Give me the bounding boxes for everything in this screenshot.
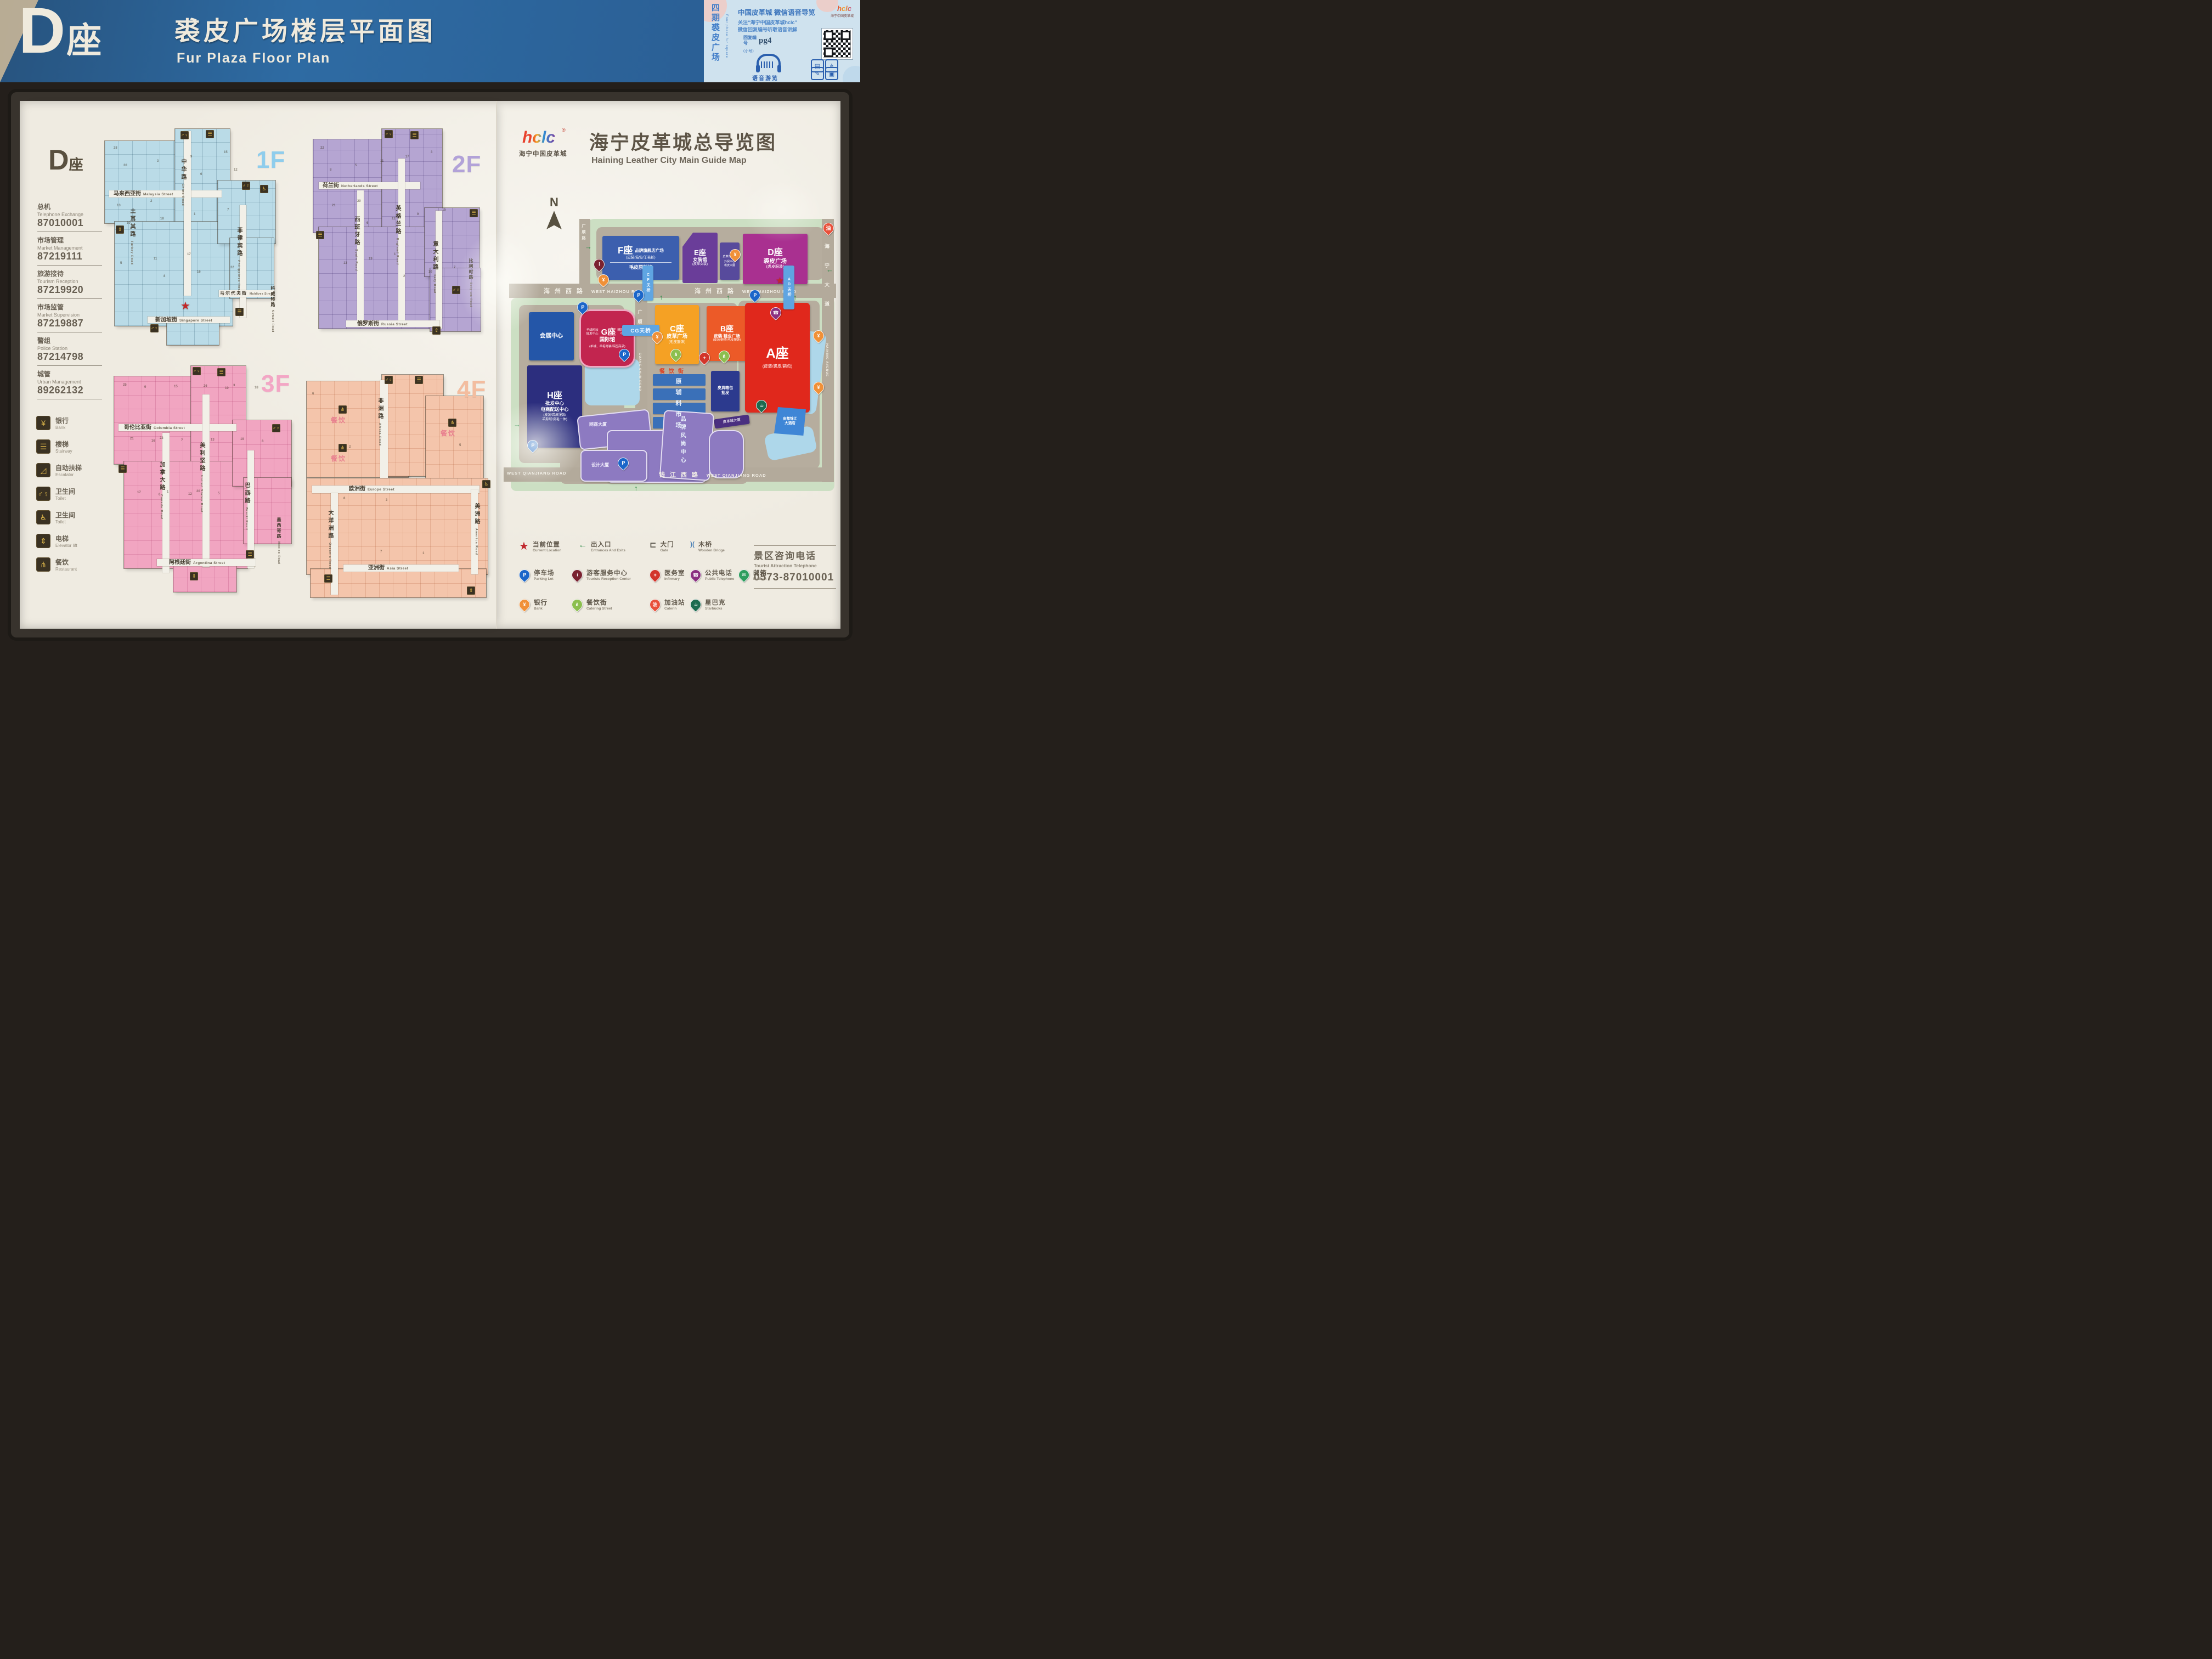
toilet-icon: ♂♀ — [272, 424, 280, 432]
unit-number: 15 — [174, 385, 178, 388]
street-name-en: Netherlands Street — [341, 184, 378, 188]
accessible_toilet-icon: ♿ — [36, 510, 50, 524]
icon-glyph: P — [753, 293, 757, 298]
icon-glyph: ⋔ — [341, 445, 345, 450]
building-title: B座 — [720, 325, 733, 333]
haining-avenue-label: 海宁大道 HAINING AVENUE — [823, 244, 831, 377]
contact-name-zh: 城管 — [37, 369, 102, 379]
icon-glyph: ♂♀ — [385, 132, 393, 137]
restaurant-label: 餐饮 — [331, 415, 346, 425]
map-legend-bank: ¥银行Bank — [519, 598, 548, 611]
street-label: 阿根廷街Argentina Street — [169, 560, 225, 566]
stairway-icon: ☰ — [235, 308, 244, 316]
street-name-en: Oceania Road — [328, 543, 331, 569]
exit-arrow-icon: ↑ — [659, 293, 663, 301]
unit-number: 2 — [150, 200, 152, 203]
exit-arrow-icon: ↑ — [634, 484, 638, 492]
unit-number: 7 — [227, 208, 229, 212]
fashion-center-label: 品牌风尚中心 — [678, 416, 686, 481]
street-name-zh: 加拿大路 — [159, 461, 165, 492]
unit-number: 13 — [117, 204, 121, 207]
unit-number: 11 — [380, 160, 383, 163]
icon-glyph: ¥ — [41, 419, 46, 427]
icon-glyph: ⋔ — [674, 352, 678, 357]
contact-name-en: Market Supervision — [37, 312, 102, 318]
icon-glyph: ◿ — [41, 466, 47, 474]
street-label: 亚洲街Asia Street — [368, 566, 408, 571]
map-legend-gate: ⊏大门Gate — [650, 540, 674, 552]
unit-number: 12 — [188, 493, 192, 496]
ad-bridge: AD天桥 — [783, 266, 794, 309]
hclc-logo-sub: 海宁中国皮革城 — [831, 13, 854, 18]
street-label: 加拿大路Canada Road — [159, 461, 164, 546]
building-line: 会展中心 — [540, 332, 563, 340]
icon-glyph: ☰ — [120, 466, 125, 471]
icon-glyph: ♿ — [40, 513, 47, 521]
accessible_toilet-icon: ♿ — [260, 185, 268, 193]
stairway-icon: ☰ — [206, 130, 214, 138]
hclc-logo-sub: 海宁中国皮革城 — [519, 149, 567, 158]
icon-glyph: ⇕ — [192, 574, 196, 579]
contact-entry: 市场监管Market Supervision87219887 — [37, 299, 102, 332]
street-label: 马尔代夫街Maldives Street — [220, 291, 274, 296]
street-path — [312, 486, 479, 493]
map-legend-zh: 出入口 — [591, 540, 625, 549]
legend-item-elevator: ⇕电梯Elevator lift — [36, 534, 82, 548]
icon-glyph: ¥ — [523, 602, 526, 607]
street-label: 非洲路Africa Road — [377, 398, 382, 466]
street-name-en: Philippines Road — [237, 260, 240, 294]
floor-block — [167, 320, 219, 345]
unit-number: 19 — [369, 257, 373, 261]
map-legend-en: Entrances And Exits — [591, 549, 625, 552]
wooden_bridge-icon: )( — [690, 541, 695, 548]
building-line: 女装馆 — [693, 257, 707, 263]
building-line: 皮革城大厦 — [723, 418, 741, 425]
building-line: 羊绒时装批发中心 — [585, 329, 600, 336]
stairway-icon: ☰ — [316, 231, 324, 239]
exit-arrow-icon: → — [585, 242, 592, 251]
floorplan-4F: 非洲路Africa Road欧洲街Europe Street大洋洲路Oceani… — [297, 371, 493, 604]
road-name-zh: 海州西路 — [695, 286, 738, 295]
reply-code: pg4 — [759, 36, 771, 46]
hotline-block: 景区咨询电话 Tourist Attraction Telephone 0573… — [754, 543, 836, 591]
restaurant-icon: ⋔ — [338, 405, 347, 414]
icon-glyph: ☎ — [692, 573, 698, 578]
building-line: (皮装/裘皮服装/ — [543, 414, 566, 418]
street-name-en: England Road — [396, 238, 399, 265]
contact-name-en: Telephone Exchange — [37, 212, 102, 217]
building-line: 皮都锦江 — [783, 417, 797, 421]
bridge-label: CG天桥 — [630, 326, 651, 334]
icon-glyph: ¥ — [656, 335, 658, 340]
floor-block — [173, 566, 236, 592]
map-legend-zh: 公共电话 — [705, 568, 734, 577]
street-name-en: Turkey Road — [130, 241, 133, 265]
road-name-zh: 海宁大道 — [824, 244, 830, 320]
street-name-zh: 阿根廷街 — [169, 560, 191, 566]
building-label: 设计大厦 — [591, 462, 609, 468]
unit-number: 10 — [225, 387, 229, 390]
building-line: 皮装·鞋业广场 — [714, 334, 740, 338]
contact-name-zh: 总机 — [37, 202, 102, 211]
building-line: (毛皮服饰) — [669, 340, 685, 345]
icon-glyph: i — [599, 262, 600, 267]
icon-glyph: ⇕ — [118, 227, 122, 232]
map-legend-current_star: ★当前位置Current Location — [519, 540, 561, 552]
map-legend-telephone: ☎公共电话Public Telephone — [690, 568, 734, 581]
contact-number: 87219887 — [37, 318, 102, 329]
map-legend-zh: 星巴克 — [705, 598, 726, 607]
unit-number: 8 — [163, 275, 165, 278]
contact-name-en: Urban Management — [37, 379, 102, 385]
contact-entry: 警组Police Station87214798 — [37, 332, 102, 366]
street-name-en: Russia Street — [381, 323, 408, 326]
street-name-zh: 新加坡街 — [155, 317, 177, 323]
street-label: 欧洲街Europe Street — [349, 487, 394, 492]
map-legend-zh: 大门 — [661, 540, 674, 549]
map-legend-mailbox: ✉邮箱Mailbox — [738, 568, 767, 581]
building-letter: D — [19, 0, 66, 67]
icon-glyph: ☎ — [772, 311, 778, 315]
icon-glyph: P — [581, 305, 584, 310]
unit-number: 19 — [240, 438, 244, 441]
map-legend-zh: 木桥 — [698, 540, 725, 549]
accessible_toilet-icon: ♿ — [482, 480, 490, 488]
legend-label-en: Toilet — [55, 520, 75, 524]
street-label: 菲律宾路Philippines Road — [236, 227, 241, 301]
street-name-en: Asia Street — [387, 567, 408, 571]
starbucks-pin-icon: ☕ — [688, 597, 703, 612]
legend-item-toilet: ♂♀卫生间Toilet — [36, 487, 82, 501]
contact-name-en: Market Management — [37, 245, 102, 251]
street-name-zh: 中华路 — [180, 159, 186, 182]
street-name-en: Spain Road — [354, 249, 358, 271]
decorative-blob — [816, 0, 838, 12]
current-location-star: ★ — [776, 275, 784, 286]
unit-number: 1 — [194, 213, 195, 216]
building-line: (皮装/箱包/羊毛衫) — [626, 256, 655, 260]
toilet-icon: ♂♀ — [150, 324, 159, 332]
icon-glyph: ⋔ — [450, 420, 455, 425]
unit-number: 17 — [405, 155, 409, 159]
unit-number: 3 — [431, 151, 432, 154]
unit-number: 15 — [442, 208, 446, 212]
floor-badge: 3F — [261, 370, 290, 398]
icon-glyph: P — [523, 573, 526, 578]
building-line: (羊绒、羊毛时装/韩国商品) — [589, 345, 625, 349]
street-name-en: Italy Road — [433, 274, 436, 294]
street-name-zh: 比利时路 — [469, 258, 473, 280]
street-name-en: Singapore Street — [179, 319, 212, 323]
unit-number: 5 — [459, 444, 461, 447]
map-legend-reception: i游客服务中心Tourists Reception Center — [572, 568, 631, 581]
icon-glyph: P — [637, 293, 640, 298]
street-name-zh: 西班牙路 — [353, 216, 359, 247]
building-line: 裘皮大厦 — [724, 264, 735, 267]
street-label: 荷兰街Netherlands Street — [323, 183, 378, 189]
floorplan-panel: D座 总机Telephone Exchange87010001市场管理Marke… — [20, 101, 497, 629]
stairway-icon: ☰ — [470, 209, 478, 217]
building-line: 电商配送中心 — [540, 407, 568, 413]
catering-pin-icon: ⋔ — [569, 597, 585, 612]
stairway-icon: ☰ — [217, 368, 225, 376]
contact-number: 89262132 — [37, 385, 102, 396]
restaurant-label: 餐饮 — [331, 454, 346, 463]
street-name-en: Argentina Street — [193, 561, 225, 565]
unit-number: 8 — [330, 168, 331, 172]
contact-name-en: Police Station — [37, 346, 102, 351]
icon-glyph: P — [531, 443, 534, 448]
legend-label-en: Elevator lift — [55, 543, 77, 548]
unit-number: 28 — [114, 146, 117, 150]
compass-label: N — [550, 195, 558, 210]
icon-glyph: ☰ — [247, 552, 252, 557]
signboard: D座 总机Telephone Exchange87010001市场管理Marke… — [11, 92, 849, 637]
icon-glyph: ☰ — [412, 133, 416, 138]
street-name-zh: 科威特路 — [270, 286, 275, 308]
unit-number: 9 — [144, 386, 146, 389]
unit-number: 6 — [200, 173, 202, 176]
unit-number: 1 — [422, 552, 424, 555]
icon-glyph: ¥ — [733, 252, 736, 257]
map-legend-en: Caterin — [664, 607, 685, 611]
elevator-icon: ⇕ — [116, 225, 124, 234]
legend-item-accessible_toilet: ♿卫生间Toilet — [36, 510, 82, 524]
map-title-zh: 海宁皮革城总导览图 — [589, 127, 777, 155]
street-name-zh: 美利坚路 — [199, 442, 205, 473]
contact-name-en: Tourism Reception — [37, 279, 102, 284]
unit-number: 1 — [167, 490, 168, 494]
building-line: 批发中心 — [545, 400, 564, 407]
building-title: D座 — [768, 248, 783, 258]
icon-glyph: ♂♀ — [385, 377, 393, 382]
building-title: F座 — [618, 246, 633, 256]
unit-number: 3 — [386, 499, 387, 502]
registered-mark: ® — [562, 127, 566, 133]
unit-number: 12 — [234, 168, 238, 172]
icon-glyph: ☰ — [471, 211, 476, 216]
icon-glyph: ☰ — [40, 443, 47, 450]
escalator-icon: ◿ — [36, 463, 50, 477]
icon-glyph: ☕ — [693, 602, 698, 607]
floorplan-1F: 马来西亚街Malaysia Street中华路China Road土耳其路Tur… — [98, 126, 286, 352]
gas-pin-icon: 油 — [647, 597, 663, 612]
icon-glyph: + — [653, 573, 656, 578]
decorative-blob — [843, 66, 860, 82]
icon-glyph: ⋔ — [722, 354, 726, 359]
icon-glyph: ☰ — [219, 370, 223, 375]
building-exhibition: 会展中心 — [529, 312, 574, 360]
header-title-zh: 裘皮广场楼层平面图 — [174, 10, 436, 48]
contact-entry: 总机Telephone Exchange87010001 — [37, 199, 102, 232]
floor-badge: 1F — [256, 146, 285, 174]
street-label: 科威特路Kuwait Road — [270, 286, 275, 343]
divider — [754, 588, 836, 589]
road-name-en: WEST QIANJIANG ROAD — [707, 473, 766, 478]
map-legend-zh: 当前位置 — [533, 540, 561, 549]
elevator-icon: ⇕ — [432, 326, 441, 335]
exit-arrow-icon: ← — [826, 266, 833, 274]
map-legend-en: Current Location — [533, 549, 561, 552]
floor-block — [124, 461, 247, 568]
qr-code — [822, 29, 853, 59]
unit-number: 8 — [262, 440, 263, 443]
toilet-icon: ♂♀ — [193, 367, 201, 375]
street-name-en: Africa Road — [378, 423, 381, 446]
unit-number: 22 — [160, 437, 163, 440]
contact-entry: 市场管理Market Management87219111 — [37, 232, 102, 266]
toilet-icon: ♂♀ — [36, 487, 50, 501]
guide-map-panel: hclc ® 海宁中国皮革城 海宁皮革城总导览图 Haining Leather… — [497, 101, 840, 629]
legend-item-stairway: ☰楼梯Stairway — [36, 439, 82, 454]
legend-label-zh: 卫生间 — [55, 487, 75, 496]
map-legend-zh: 餐饮街 — [586, 598, 612, 607]
building-line: (裘皮服装) — [766, 265, 785, 270]
food-street-label: 餐饮街 — [659, 366, 687, 375]
map-legend-zh: 银行 — [534, 598, 548, 607]
toilet-icon: ♂♀ — [242, 182, 250, 190]
unit-number: 6 — [312, 392, 314, 396]
street-label: 土耳其路Turkey Road — [129, 208, 134, 290]
hotline-zh: 景区咨询电话 — [754, 548, 836, 562]
mailbox-pin-icon: ✉ — [736, 567, 752, 583]
map-legend-en: Starbucks — [705, 607, 726, 611]
icon-glyph: ☰ — [207, 132, 212, 137]
compass-arrow-icon — [546, 211, 562, 229]
stairway-icon: ☰ — [324, 574, 332, 583]
map-legend-zh: 邮箱 — [753, 568, 767, 577]
road-name-en: HAINING AVENUE — [825, 343, 828, 377]
building-label: 网商大厦 — [589, 421, 607, 427]
floor-block — [233, 420, 291, 486]
legend-label-zh: 银行 — [55, 416, 69, 425]
street-name-zh: 美洲路 — [473, 503, 479, 526]
hclc-logo: hclc — [522, 128, 555, 147]
contact-number: 87219111 — [37, 251, 102, 262]
building-suffix: 座 — [69, 156, 83, 173]
exit-arrow-icon: → — [513, 420, 521, 428]
icon-glyph: + — [703, 356, 706, 360]
street-label: 哥伦比亚街Columbia Street — [124, 425, 185, 431]
street-label: 英格兰路England Road — [394, 205, 400, 290]
street-name-en: Belgium Road — [469, 283, 472, 308]
street-label: 美利坚路United States Road — [199, 442, 204, 533]
street-name-zh: 欧洲街 — [349, 486, 365, 492]
elevator-icon: ⇕ — [467, 586, 475, 595]
legend-item-restaurant: ⋔餐饮Restaurant — [36, 557, 82, 572]
card-line2: 微信回复编号听取语音讲解 — [738, 26, 797, 33]
road-name-en: GUANG SHUN ROAD — [638, 353, 641, 391]
map-legend-infirmary: +医务室Infirmary — [650, 568, 685, 581]
street-name-en: China Road — [181, 184, 184, 206]
building-line: 批发 — [721, 391, 729, 396]
audio-caption: 语音游览 — [752, 74, 778, 82]
street-name-zh: 马尔代夫街 — [220, 291, 247, 296]
building-line: 大酒店 — [785, 421, 795, 426]
map-legend-zh: 医务室 — [664, 568, 685, 577]
unit-number: 7 — [181, 439, 183, 442]
panel-building-title: D座 — [48, 144, 83, 177]
hclc-logo: hclc — [837, 4, 851, 13]
icon-glyph: ✉ — [742, 573, 746, 578]
reception-pin-icon: i — [569, 567, 585, 583]
building-a: A座 (皮装/裘皮/箱包) — [745, 303, 810, 413]
icon-glyph: ⇕ — [469, 588, 473, 593]
road-label: 海州西路 WEST HAIZHOU ROAD — [544, 286, 646, 295]
floor-badge: 4F — [457, 376, 486, 403]
stairway-icon: ☰ — [410, 131, 419, 139]
legend-label-zh: 自动扶梯 — [55, 463, 82, 472]
unit-number: 2 — [403, 275, 405, 278]
feature-icon: ✎ — [811, 67, 824, 80]
toilet-icon: ♂♀ — [180, 131, 189, 139]
card-vertical-subtitle: Four phase fur square — [725, 14, 728, 75]
icon-glyph: ☰ — [237, 309, 241, 314]
street-name-zh: 哥伦比亚街 — [124, 425, 151, 431]
building-title: G座 — [601, 328, 616, 337]
street-name-zh: 英格兰路 — [394, 205, 400, 236]
map-legend-wooden_bridge: )(木桥Wooden Bridge — [690, 540, 725, 552]
icon-glyph: 油 — [652, 602, 657, 607]
building-f: F座 品牌旗舰店广场 (皮装/箱包/羊毛衫) 毛皮原料馆 — [602, 236, 679, 280]
street-label: 马来西亚街Malaysia Street — [114, 191, 173, 197]
street-name-zh: 亚洲街 — [368, 565, 385, 571]
stairway-icon: ☰ — [415, 376, 423, 384]
building-line: 皮草广场 — [667, 334, 687, 340]
elevator-icon: ⇕ — [190, 572, 198, 580]
unit-number: 26 — [204, 385, 207, 388]
restaurant-icon: ⋔ — [36, 557, 50, 572]
icon-glyph: ¥ — [817, 385, 820, 390]
street-label: 西班牙路Spain Road — [353, 216, 359, 296]
restaurant-icon: ⋔ — [448, 419, 456, 427]
floorplan-2F: 荷兰街Netherlands Street西班牙路Spain Road英格兰路E… — [305, 126, 484, 352]
restaurant-icon: ⋔ — [338, 444, 347, 452]
unit-number: 18 — [160, 217, 164, 221]
legend-label-zh: 电梯 — [55, 534, 77, 543]
map-legend-en: Public Telephone — [705, 577, 734, 581]
icon-glyph: ⋔ — [575, 602, 579, 607]
map-title-en: Haining Leather City Main Guide Map — [591, 156, 747, 166]
gate-icon: ⊏ — [650, 541, 657, 549]
restaurant-label: 餐饮 — [441, 428, 456, 438]
legend-label-zh: 卫生间 — [55, 510, 75, 520]
map-legend-en: Parking Lot — [534, 577, 555, 581]
hotline-en: Tourist Attraction Telephone — [754, 563, 836, 568]
street-name-zh: 俄罗斯街 — [357, 321, 379, 327]
street-name-zh: 非洲路 — [377, 398, 383, 421]
icon-glyph: ♂♀ — [242, 183, 250, 188]
bank-pin-icon: ¥ — [517, 597, 532, 612]
contact-number: 87214798 — [37, 351, 102, 363]
building-line: 皮具箱包 — [718, 386, 733, 391]
street-name-zh: 马来西亚街 — [114, 191, 141, 197]
street-name-en: Kuwait Road — [271, 310, 274, 332]
road-name-en: WEST QIANJIANG ROAD — [507, 471, 567, 476]
redpacket-icon: ▣ — [825, 67, 838, 80]
map-legend-catering: ⋔餐饮街Catering Street — [572, 598, 612, 611]
map-legend-en: Mailbox — [753, 577, 767, 581]
map-legend-en: Bank — [534, 607, 548, 611]
unit-number: 25 — [123, 383, 127, 387]
building-h: H座 批发中心 电商配送中心 (皮装/裘皮服装/ 羊剪绒/皮毛一体) — [527, 365, 582, 448]
icon-glyph: ♿ — [262, 187, 266, 191]
map-legend-en: Wooden Bridge — [698, 549, 725, 552]
legend-label-en: Stairway — [55, 449, 72, 454]
street-name-zh: 荷兰街 — [323, 183, 339, 189]
stairway-icon: ☰ — [36, 439, 50, 454]
